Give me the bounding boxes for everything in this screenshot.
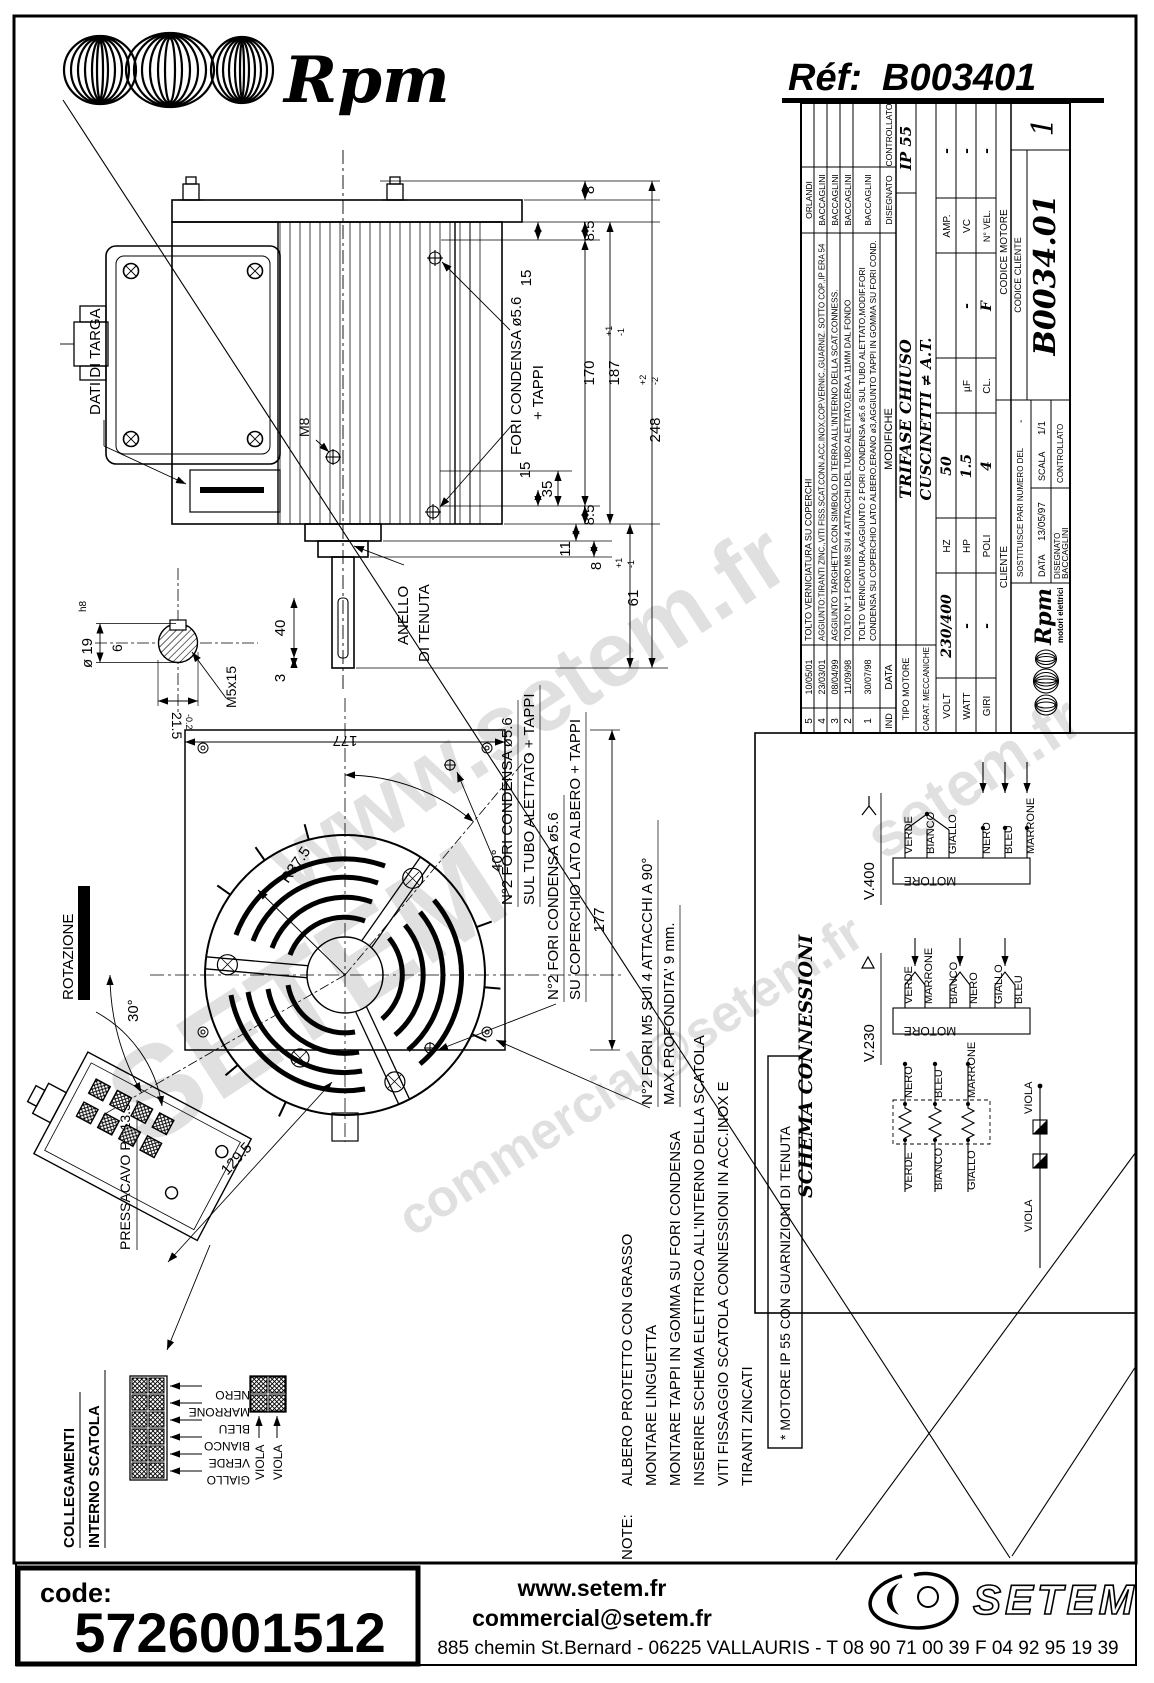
- dim-85-bot: 8.5: [581, 505, 598, 526]
- rpm-brand-text: Rpm: [282, 43, 450, 118]
- setem-logo-text: SETEM: [973, 1576, 1138, 1623]
- dim-170: 170: [581, 360, 598, 385]
- ip-rating: IP 55: [897, 126, 915, 171]
- nvel-value: -: [979, 148, 995, 154]
- schema-v230: V.230 MOTORE VERDE MARRONE BIANCO NERO G…: [861, 938, 1030, 1065]
- volt-value: 230/400: [939, 594, 955, 659]
- rev-by: BACCAGLINI: [863, 174, 873, 226]
- mounting-plate: [172, 200, 522, 222]
- amp-label: AMP.: [942, 214, 953, 237]
- rev-date: 08/04/99: [830, 659, 840, 694]
- dati-targa-label: DATI DI TARGA: [87, 308, 104, 415]
- ref-header: Réf: B003401: [782, 57, 1104, 103]
- wire-label: NERO: [903, 1066, 915, 1098]
- ref-label: Réf:: [788, 57, 862, 99]
- titleblock-brand: Rpm: [1031, 588, 1057, 646]
- dim-177-right: 177: [591, 907, 608, 932]
- uf-value: -: [959, 303, 975, 309]
- hp-label: HP: [962, 539, 973, 553]
- pressacavo-label: PRESSACAVO PG13.5: [117, 1103, 133, 1250]
- cl-label: CL.: [982, 378, 993, 394]
- note-line: MONTARE TAPPI IN GOMMA SU FORI CONDENSA: [667, 1131, 684, 1486]
- anello-label: ANELLO: [395, 586, 412, 645]
- dim-61: 61: [625, 590, 642, 607]
- collegamenti-detail: COLLEGAMENTI INTERNO SCATOLA NERO MARRON…: [61, 1370, 286, 1548]
- drawing-number: B0034.01: [1028, 194, 1063, 356]
- footer: code: 5726001512 www.setem.fr commercial…: [16, 1563, 1138, 1665]
- note-line: INSERIRE SCHEMA ELETTRICO ALL'INTERNO DE…: [691, 1035, 708, 1486]
- tipo-motore-label: TIPO MOTORE: [901, 658, 911, 721]
- wire-label: NERO: [215, 1388, 250, 1402]
- collegamenti-title-2: INTERNO SCATOLA: [86, 1405, 103, 1548]
- drawing-canvas: www.setem.fr SETEM commercial@setem.fr s…: [0, 0, 1154, 1683]
- uf-label: µF: [962, 380, 973, 392]
- rev-by: ORLANDI: [804, 181, 814, 219]
- rev-text: TOLTO VERNICIATURA,AGGIUNTO 2 FORI CONDE…: [857, 267, 867, 641]
- fori-condensa-label: FORI CONDENSA ø5.6: [508, 297, 525, 455]
- dim-15-bot: 15: [517, 462, 534, 479]
- wire-label: BLEU: [1003, 825, 1015, 854]
- dim-15-top: 15: [518, 270, 535, 287]
- dim-30deg: 30°: [125, 999, 142, 1022]
- wire-label: MARRONE: [966, 1042, 978, 1098]
- hz-value: 50: [939, 456, 955, 476]
- title-block-bottom: CLIENTE CODICE MOTORE Rpm motori elettri…: [996, 117, 1070, 715]
- dim-m5x15: M5x15: [223, 666, 239, 708]
- codice-cliente-label: CODICE CLIENTE: [1013, 237, 1023, 313]
- rev-text: TOLTO N° 1 FORO M8 SUI 4 ATTACCHI DEL TU…: [843, 299, 853, 641]
- rev-col-disegnato: DISEGNATO: [884, 175, 894, 225]
- dim-8-top: 8: [581, 186, 598, 194]
- label-m5-attacchi-2: MAX.PROFONDITA' 9 mm.: [661, 922, 678, 1105]
- cooling-fins: [280, 222, 480, 524]
- note-line: TIRANTI ZINCATI: [739, 1366, 756, 1486]
- note-line: MONTARE LINGUETTA: [643, 1325, 660, 1486]
- dim-35: 35: [539, 481, 556, 498]
- rev-date: 11/09/98: [843, 660, 853, 694]
- hp-value: 1.5: [959, 454, 975, 478]
- shaft-detail: ø 19 h8 6 21.5 -0.2 M5x15: [78, 568, 258, 739]
- ref-value: B003401: [882, 57, 1036, 99]
- rev-text: AGGIUNTO TARGHETTA CON SIMBOLO DI TERRA …: [830, 289, 840, 641]
- tipo-motore-value: TRIFASE CHIUSO: [896, 339, 915, 499]
- wire-label: BIANCO: [948, 961, 960, 1004]
- rev-date: 23/03/01: [817, 659, 827, 694]
- rev-date: 10/05/01: [804, 659, 814, 694]
- rev-ind: 4: [817, 718, 828, 724]
- sheet-number: 1: [1026, 117, 1061, 136]
- v230-label: V.230: [861, 1024, 878, 1062]
- rev-col-modifiche: MODIFICHE: [883, 408, 895, 470]
- wire-label: BIANCO: [204, 1439, 250, 1453]
- label-fori-tubo-2: SUL TUBO ALETTATO + TAPPI: [521, 693, 538, 905]
- titleblock-brand-sub: motori elettrici: [1056, 587, 1065, 643]
- code-box: code: 5726001512: [18, 1568, 418, 1664]
- wire-label: BIANCO: [933, 1147, 945, 1190]
- wire-label: VERDE: [903, 966, 915, 1004]
- cliente-label: CLIENTE: [999, 546, 1010, 589]
- rev-col-ind: IND: [884, 713, 894, 729]
- revision-table: 5 4 3 2 1 10/05/01 23/03/01 08/04/99 11/…: [801, 103, 896, 733]
- drawing-sheet: www.setem.fr SETEM commercial@setem.fr s…: [0, 0, 1154, 1683]
- wire-label: BLEU: [933, 1069, 945, 1098]
- wire-label: MARRONE: [1025, 798, 1037, 854]
- wire-label: GIALLO: [966, 1150, 978, 1190]
- wire-label: VERDE: [209, 1456, 250, 1470]
- rotazione-text: ROTAZIONE: [60, 914, 77, 1000]
- fori-condensa-label2: + TAPPI: [530, 365, 547, 420]
- wire-label: GIALLO: [207, 1473, 250, 1487]
- dim-187-tol-minus: -1: [616, 328, 626, 336]
- viola-label: VIOLA: [1023, 1081, 1035, 1114]
- website: www.setem.fr: [517, 1575, 667, 1601]
- wire-label: VERDE: [903, 816, 915, 854]
- watermark-text: setem.fr: [854, 683, 1094, 872]
- note-line: VITI FISSAGGIO SCATOLA CONNESSIONI IN AC…: [715, 1081, 732, 1486]
- dim-dia19: ø 19: [79, 638, 96, 668]
- motore-strip-label: MOTORE: [904, 1024, 956, 1038]
- viola-label: VIOLA: [271, 1445, 285, 1480]
- wire-label: VERDE: [903, 1152, 915, 1190]
- rev-ind: 5: [804, 718, 815, 724]
- rev-date: 30/07/98: [863, 659, 873, 694]
- viola-label: VIOLA: [1023, 1199, 1035, 1232]
- sostituisce-label: SOSTITUISCE PARI NUMERO DEL: [1016, 447, 1025, 577]
- note-line: ALBERO PROTETTO CON GRASSO: [619, 1234, 636, 1486]
- dim-248-tol-plus: +2: [638, 375, 648, 385]
- terminal-block-6: [132, 1378, 164, 1478]
- note-block: NOTE: ALBERO PROTETTO CON GRASSO MONTARE…: [619, 1035, 756, 1560]
- rpm-coil-icon: [64, 33, 273, 107]
- code-value: 5726001512: [74, 1601, 385, 1664]
- rev-text: AGGIUNTO:TIRANTI ZINC.,VITI FISS.SCAT.CO…: [818, 243, 827, 641]
- watt-label: WATT: [962, 692, 973, 719]
- v400-label: V.400: [861, 862, 878, 900]
- rev-text: TOLTO VERNICIATURA SU COPERCHI: [804, 479, 814, 641]
- stud-bolts: [178, 177, 408, 200]
- carat-label: CARAT. MECCANICHE: [922, 647, 931, 731]
- scala-label: SCALA: [1037, 451, 1047, 481]
- wire-label: MARRONE: [189, 1405, 250, 1419]
- spec-rows: TIPO MOTORE TRIFASE CHIUSO IP 55 CARAT. …: [896, 103, 1011, 733]
- volt-label: VOLT: [942, 693, 953, 718]
- dim-8-bot: 8: [588, 562, 605, 570]
- email: commercial@setem.fr: [472, 1605, 712, 1631]
- rev-text: CONDENSA SU COPERCHIO LATO ALBERO,ERANO …: [868, 240, 878, 641]
- rev-ind: 1: [863, 718, 874, 724]
- giri-value: -: [979, 623, 995, 629]
- hz-label: HZ: [942, 539, 953, 552]
- label-fori-coperchio-1: N°2 FORI CONDENSA ø5.6: [545, 812, 562, 1000]
- giri-label: GIRI: [982, 696, 993, 717]
- label-m5-attacchi-1: N°2 FORI M5 SUI 4 ATTACCHI A 90°: [639, 858, 656, 1105]
- side-view: [60, 150, 522, 690]
- rev-col-controllato: CONTROLLATO: [884, 103, 894, 166]
- dim-177-top: 177: [332, 732, 357, 749]
- wire-label: GIALLO: [947, 814, 959, 854]
- data-label: DATA: [1037, 554, 1047, 577]
- setem-logo: SETEM: [870, 1574, 1138, 1628]
- rev-by: BACCAGLINI: [843, 174, 853, 226]
- codice-motore-label: CODICE MOTORE: [999, 209, 1010, 295]
- anello-label2: DI TENUTA: [416, 584, 433, 662]
- dim-248-tol-minus: -2: [650, 377, 660, 385]
- poli-value: 4: [979, 461, 995, 471]
- rev-ind: 3: [830, 718, 841, 724]
- scala-value: 1/1: [1037, 421, 1048, 435]
- wire-label: NERO: [968, 972, 980, 1004]
- nvel-label: N° VEL.: [982, 210, 992, 242]
- vc-label: VC: [962, 219, 973, 233]
- sostituisce-value: -: [1016, 420, 1027, 423]
- rev-ind: 2: [843, 718, 854, 724]
- dim-key6: 6: [109, 644, 125, 652]
- vc-value: -: [959, 148, 975, 154]
- dim-187-tol-plus: +1: [604, 326, 614, 336]
- viola-label: VIOLA: [253, 1445, 267, 1480]
- address: 885 chemin St.Bernard - 06225 VALLAURIS …: [437, 1638, 1118, 1659]
- controllato-label: CONTROLLATO: [1056, 424, 1065, 483]
- note-prefix: NOTE:: [619, 1514, 636, 1560]
- wire-label: GIALLO: [993, 964, 1005, 1004]
- dim-h8: h8: [78, 600, 89, 612]
- dim-215: 21.5: [169, 712, 185, 739]
- watt-value: -: [959, 623, 975, 629]
- dim-248: 248: [647, 417, 664, 442]
- nameplate: [190, 470, 280, 512]
- collegamenti-title-1: COLLEGAMENTI: [61, 1428, 78, 1548]
- rev-col-data: DATA: [884, 664, 895, 690]
- ip55-note-text: * MOTORE IP 55 CON GUARNIZIONI DI TENUTA: [777, 1125, 793, 1440]
- wire-label: BLEU: [1013, 975, 1025, 1004]
- schema-viola-line: VIOLA VIOLA: [1023, 1081, 1047, 1268]
- amp-value: -: [939, 148, 955, 154]
- dim-187: 187: [606, 360, 623, 385]
- dim-61-tol-plus: +1: [614, 558, 624, 568]
- rev-by: BACCAGLINI: [817, 174, 827, 226]
- rpm-logo: Rpm: [64, 33, 450, 118]
- poli-label: POLI: [982, 535, 993, 558]
- disegnato-value: BACCAGLINI: [1060, 528, 1070, 580]
- wire-label: MARRONE: [923, 948, 935, 1004]
- schema-windings: NERO BLEU MARRONE VERDE BIANCO GIALLO: [893, 1042, 990, 1192]
- cl-value: F: [979, 300, 995, 312]
- terminal-block-viola: [250, 1376, 286, 1412]
- data-value: 13/05/97: [1037, 502, 1048, 541]
- wire-label: BLEU: [219, 1422, 250, 1436]
- dim-40: 40: [272, 620, 289, 637]
- schema-title: SCHEMA CONNESSIONI: [795, 934, 817, 1198]
- wire-label: NERO: [981, 822, 993, 854]
- title-block: 5 4 3 2 1 10/05/01 23/03/01 08/04/99 11/…: [801, 103, 1070, 733]
- m8-label: M8: [296, 417, 312, 437]
- motor-body: [172, 222, 502, 524]
- carat-value: CUSCINETTI ≠ A.T.: [917, 337, 935, 500]
- label-fori-coperchio-2: SU COPERCHIO LATO ALBERO + TAPPI: [567, 719, 584, 1000]
- rev-by: BACCAGLINI: [830, 174, 840, 226]
- dim-11: 11: [557, 541, 574, 557]
- dim-3: 3: [272, 674, 289, 682]
- diagonal-lines: [63, 100, 1136, 1560]
- wire-label: BIANCO: [925, 811, 937, 854]
- dim-215-tol: -0.2: [184, 714, 194, 730]
- dim-85-top: 8.5: [581, 221, 598, 242]
- motore-strip-label: MOTORE: [904, 874, 956, 888]
- dim-61-tol-minus: -1: [626, 560, 636, 568]
